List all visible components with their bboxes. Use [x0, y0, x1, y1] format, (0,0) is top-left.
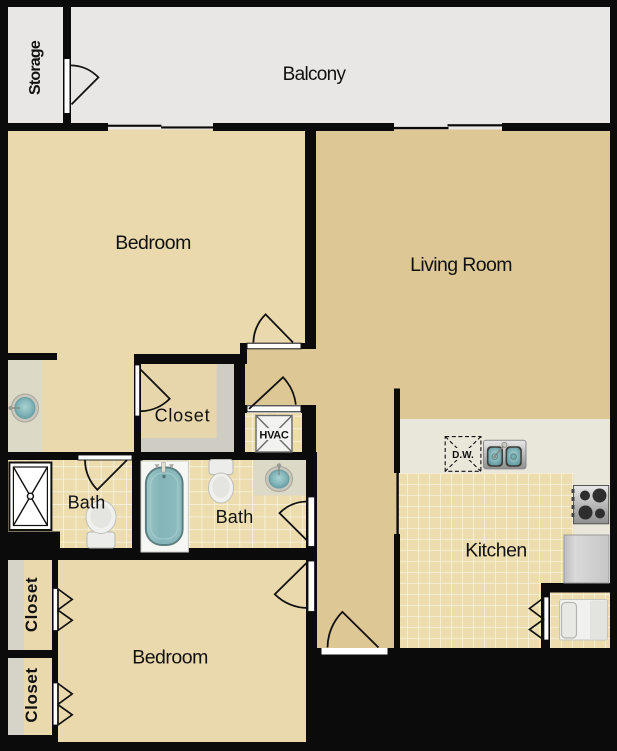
svg-text:D.W.: D.W. — [452, 450, 474, 461]
svg-text:HVAC: HVAC — [259, 430, 289, 442]
svg-text:Bedroom: Bedroom — [132, 647, 208, 669]
svg-text:Closet: Closet — [155, 406, 211, 426]
svg-text:Bedroom: Bedroom — [115, 232, 191, 254]
svg-text:Bath: Bath — [216, 507, 254, 527]
svg-text:Kitchen: Kitchen — [465, 540, 527, 562]
svg-text:Closet: Closet — [22, 577, 41, 632]
svg-text:Balcony: Balcony — [283, 64, 347, 85]
svg-text:Storage: Storage — [27, 40, 44, 95]
svg-text:Bath: Bath — [68, 493, 106, 513]
svg-text:Closet: Closet — [22, 667, 41, 722]
svg-text:Living Room: Living Room — [410, 254, 512, 276]
